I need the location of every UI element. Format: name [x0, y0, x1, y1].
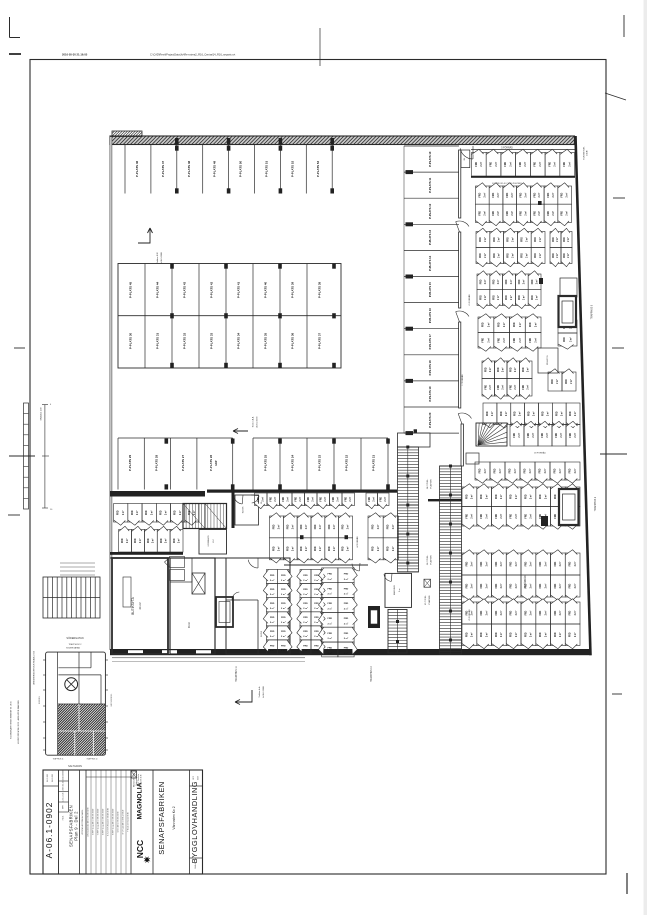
- svg-text:FRD: FRD: [511, 632, 513, 637]
- svg-text:FRD: FRD: [346, 497, 348, 502]
- svg-text:FRD: FRD: [525, 583, 527, 588]
- svg-text:FRD: FRD: [519, 279, 521, 284]
- svg-text:FRD: FRD: [281, 617, 286, 619]
- svg-text:TRAPPHUS 10: TRAPPHUS 10: [370, 665, 373, 681]
- svg-text:2 m²: 2 m²: [281, 593, 286, 596]
- svg-text:FRD: FRD: [555, 610, 557, 615]
- svg-text:FRD: FRD: [505, 162, 507, 167]
- svg-text:P-PLATS 42: P-PLATS 42: [210, 282, 214, 299]
- svg-text:S WSP Group AB tel. 08-6: S WSP Group AB tel. 08-685 60 00: [112, 809, 115, 835]
- svg-text:FRD: FRD: [525, 514, 527, 519]
- svg-text:18 FÖRRÅD: 18 FÖRRÅD: [534, 452, 546, 455]
- svg-text:P-PLATS 40: P-PLATS 40: [264, 282, 268, 299]
- svg-text:P-PLATS 52: P-PLATS 52: [290, 161, 294, 178]
- svg-text:FRD: FRD: [555, 583, 557, 588]
- svg-text:FRD: FRD: [498, 338, 500, 343]
- svg-text:FRD: FRD: [511, 367, 513, 372]
- svg-text:SLUSS: SLUSS: [243, 506, 245, 513]
- svg-text:P-PLATS 20: P-PLATS 20: [428, 412, 432, 428]
- svg-text:5 FÖRRÅD: 5 FÖRRÅD: [501, 147, 513, 150]
- svg-text:FRD: FRD: [281, 645, 286, 647]
- svg-text:2 m²: 2 m²: [303, 593, 308, 596]
- svg-text:2 m²: 2 m²: [270, 649, 275, 652]
- svg-text:FRD: FRD: [146, 510, 148, 515]
- svg-text:P-PLATS 18: P-PLATS 18: [428, 360, 432, 376]
- svg-text:FRD: FRD: [481, 583, 483, 588]
- svg-text:HISSMASKIN: HISSMASKIN: [207, 535, 210, 547]
- svg-text:2 m²: 2 m²: [281, 635, 286, 638]
- svg-text:FRD: FRD: [329, 546, 331, 551]
- svg-text:FRD: FRD: [160, 510, 162, 515]
- svg-text:SÖDERGATAN: SÖDERGATAN: [66, 637, 83, 640]
- svg-text:FRD: FRD: [508, 237, 510, 242]
- svg-text:2 m²: 2 m²: [328, 593, 333, 596]
- svg-text:FRD: FRD: [555, 561, 557, 566]
- svg-text:FRD: FRD: [270, 631, 275, 633]
- svg-text:E WSP Group AB tel. 08-6: E WSP Group AB tel. 08-685 60 00: [102, 809, 105, 835]
- svg-text:FRD: FRD: [570, 632, 572, 637]
- svg-text:2 m²: 2 m²: [270, 621, 275, 624]
- svg-text:2 m²: 2 m²: [328, 637, 333, 640]
- svg-text:FRD: FRD: [553, 237, 555, 242]
- svg-text:P-PLATS 46: P-PLATS 46: [135, 161, 139, 178]
- svg-text:FRD: FRD: [535, 237, 537, 242]
- svg-text:FRD: FRD: [303, 645, 308, 647]
- svg-text:FRD: FRD: [175, 510, 177, 515]
- svg-text:FRD: FRD: [529, 411, 531, 416]
- svg-text:SALTGATAN: SALTGATAN: [68, 765, 82, 768]
- svg-text:P-PLATS 10: P-PLATS 10: [428, 151, 432, 167]
- svg-text:FRD: FRD: [301, 546, 303, 551]
- svg-text:2 m²: 2 m²: [344, 593, 349, 596]
- svg-text:FRD: FRD: [328, 588, 333, 590]
- svg-text:FRD: FRD: [301, 524, 303, 529]
- svg-text:FRD: FRD: [523, 385, 525, 390]
- svg-text:FRD: FRD: [271, 497, 273, 502]
- svg-text:P-PLATS 37: P-PLATS 37: [318, 333, 322, 350]
- svg-text:FRD: FRD: [296, 497, 298, 502]
- svg-text:FRD: FRD: [479, 468, 481, 473]
- svg-text:16 CYKEL-: 16 CYKEL-: [427, 554, 429, 565]
- svg-text:FRD: FRD: [270, 603, 275, 605]
- svg-text:FRD: FRD: [524, 468, 526, 473]
- svg-text:44 FÖRRÅD: 44 FÖRRÅD: [356, 536, 359, 548]
- svg-text:FRD: FRD: [570, 433, 572, 438]
- svg-text:2016-05-30 21:16:05: 2016-05-30 21:16:05: [62, 53, 88, 57]
- svg-text:UPPDRAG.NR RITAD AV HANDL.: UPPDRAG.NR RITAD AV HANDL.: [81, 809, 84, 835]
- svg-text:FRD: FRD: [270, 617, 275, 619]
- svg-text:FRD: FRD: [535, 162, 537, 167]
- svg-text:FRD: FRD: [274, 524, 276, 529]
- svg-text:FRD: FRD: [530, 338, 532, 343]
- svg-text:HÖJDSYSTEM RH 2000 · ANSLUTER: HÖJDSYSTEM RH 2000 · ANSLUTER SAMORD.: [17, 699, 20, 744]
- svg-text:FRD: FRD: [496, 561, 498, 566]
- svg-text:FRD: FRD: [566, 379, 568, 384]
- svg-text:FRD: FRD: [549, 162, 551, 167]
- svg-text:FRD: FRD: [466, 632, 468, 637]
- svg-text:FRD: FRD: [281, 589, 286, 591]
- svg-text:P-PLATS 45: P-PLATS 45: [129, 282, 133, 299]
- svg-text:P-PLATS 19: P-PLATS 19: [428, 386, 432, 402]
- svg-text:P-PLATS 48: P-PLATS 48: [187, 161, 191, 178]
- svg-text:FRD: FRD: [564, 237, 566, 242]
- svg-text:2 m²: 2 m²: [314, 607, 319, 610]
- svg-text:FRD: FRD: [476, 162, 478, 167]
- svg-text:FRD: FRD: [466, 494, 468, 499]
- svg-text:FRD: FRD: [303, 575, 308, 577]
- svg-text:FRD: FRD: [498, 367, 500, 372]
- svg-text:FRD: FRD: [521, 237, 523, 242]
- svg-text:FRD: FRD: [494, 253, 496, 258]
- svg-text:Tel 08-470 50 80: Tel 08-470 50 80: [140, 774, 142, 785]
- svg-text:A-06.3-0000: A-06.3-0000: [160, 251, 163, 263]
- svg-text:P-PLATS 28: P-PLATS 28: [154, 455, 158, 472]
- svg-text:BARNVAGN: BARNVAGN: [393, 584, 396, 595]
- svg-text:A1 1:100: A1 1:100: [46, 774, 49, 782]
- svg-text:17 FÖRRÅD: 17 FÖRRÅD: [461, 374, 464, 386]
- svg-text:FRD: FRD: [511, 514, 513, 519]
- svg-text:Vänrosten Kv 2: Vänrosten Kv 2: [172, 806, 176, 829]
- svg-text:2 m²: 2 m²: [314, 593, 319, 596]
- svg-text:2 m²: 2 m²: [314, 579, 319, 582]
- svg-text:PLATSER: PLATSER: [430, 479, 433, 489]
- svg-text:FRD: FRD: [118, 510, 120, 515]
- svg-text:FRD: FRD: [287, 524, 289, 529]
- svg-text:FRD: FRD: [487, 411, 489, 416]
- svg-text:FRD: FRD: [507, 211, 509, 216]
- svg-text:FRD: FRD: [511, 561, 513, 566]
- svg-text:P-PLATS 38: P-PLATS 38: [318, 282, 322, 299]
- svg-text:FRD: FRD: [534, 211, 536, 216]
- svg-text:41 FÖRRÅD: 41 FÖRRÅD: [468, 294, 471, 306]
- svg-text:FRD: FRD: [530, 322, 532, 327]
- svg-text:FRD: FRD: [519, 295, 521, 300]
- svg-text:FRD: FRD: [270, 589, 275, 591]
- svg-text:P-PLATS 53: P-PLATS 53: [316, 161, 320, 178]
- svg-text:TRAPPHUS 9: TRAPPHUS 9: [594, 496, 597, 511]
- svg-text:PLATSER: PLATSER: [430, 555, 433, 565]
- svg-text:TRAPPHUS 9: TRAPPHUS 9: [591, 304, 594, 319]
- svg-text:BET: BET: [193, 776, 195, 779]
- svg-text:FRD: FRD: [479, 211, 481, 216]
- svg-text:P-PLATS 34: P-PLATS 34: [237, 333, 241, 350]
- svg-text:2 m²: 2 m²: [344, 652, 349, 655]
- svg-text:A-06.1-0902: A-06.1-0902: [44, 802, 54, 859]
- svg-text:Plan 9 - Del 2: Plan 9 - Del 2: [74, 811, 79, 841]
- svg-text:FRD: FRD: [303, 589, 308, 591]
- svg-text:2016-05-10: 2016-05-10: [63, 781, 65, 790]
- svg-text:2 m²: 2 m²: [328, 652, 333, 655]
- svg-text:B J o B VVS-Teknik tel.: B J o B VVS-Teknik tel. 08-618 40 00: [107, 808, 110, 836]
- svg-text:FRD: FRD: [498, 385, 500, 390]
- svg-text:FRD: FRD: [562, 211, 564, 216]
- svg-text:P-PLATS 49: P-PLATS 49: [213, 161, 217, 178]
- svg-text:FRD: FRD: [548, 192, 550, 197]
- svg-text:FRD: FRD: [481, 610, 483, 615]
- svg-text:P-PLATS 23: P-PLATS 23: [318, 455, 322, 472]
- svg-text:FRD: FRD: [369, 497, 371, 502]
- svg-text:FRD: FRD: [521, 192, 523, 197]
- svg-text:FRD: FRD: [506, 295, 508, 300]
- svg-text:FRD: FRD: [501, 411, 503, 416]
- svg-text:P-PLATS 11: P-PLATS 11: [428, 177, 432, 192]
- svg-text:FRD: FRD: [542, 433, 544, 438]
- svg-text:M V-Projekt AB tel. 070-: M V-Projekt AB tel. 070-43 60 20: [122, 810, 125, 835]
- svg-text:FRD: FRD: [328, 633, 333, 635]
- svg-text:FRD: FRD: [493, 295, 495, 300]
- svg-text:FRD: FRD: [388, 546, 390, 551]
- svg-text:P-PLATS 21: P-PLATS 21: [372, 455, 376, 472]
- svg-text:2 m²: 2 m²: [328, 578, 333, 581]
- svg-text:KONVEKTOR-: KONVEKTOR-: [584, 146, 586, 160]
- svg-text:MAGNOLIA: MAGNOLIA: [137, 782, 144, 819]
- svg-text:FRD: FRD: [122, 538, 124, 543]
- svg-text:FRD: FRD: [525, 494, 527, 499]
- svg-text:FRD: FRD: [328, 603, 333, 605]
- svg-text:FRD: FRD: [480, 237, 482, 242]
- svg-text:FRD: FRD: [525, 610, 527, 615]
- svg-text:FRD: FRD: [553, 253, 555, 258]
- svg-text:PLATSER: PLATSER: [428, 595, 431, 605]
- svg-text:FRD: FRD: [523, 367, 525, 372]
- svg-text:FRD: FRD: [388, 524, 390, 529]
- svg-text:FRD: FRD: [344, 588, 349, 590]
- svg-text:2 m²: 2 m²: [270, 593, 275, 596]
- svg-text:P-PLATS 47: P-PLATS 47: [161, 161, 165, 178]
- svg-text:P-PLATS 39: P-PLATS 39: [291, 282, 295, 299]
- svg-text:2 m²: 2 m²: [328, 607, 333, 610]
- svg-text:FRD: FRD: [381, 497, 383, 502]
- svg-text:FRD: FRD: [535, 253, 537, 258]
- svg-text:FRD: FRD: [552, 379, 554, 384]
- svg-text:FRD: FRD: [314, 645, 319, 647]
- svg-text:FRD: FRD: [493, 279, 495, 284]
- svg-text:FRD: FRD: [486, 367, 488, 372]
- svg-text:FRD: FRD: [314, 631, 319, 633]
- svg-text:2 m²: 2 m²: [344, 637, 349, 640]
- svg-text:V WSP Group AB tel. 08-6: V WSP Group AB tel. 08-685 60 00: [97, 809, 100, 835]
- svg-text:2 m²: 2 m²: [314, 635, 319, 638]
- svg-text:FRD: FRD: [258, 497, 260, 502]
- svg-text:FRD: FRD: [343, 546, 345, 551]
- svg-text:FRD: FRD: [481, 561, 483, 566]
- svg-text:Lotta Lindh: Lotta Lindh: [62, 793, 65, 802]
- svg-text:2 m²: 2 m²: [303, 635, 308, 638]
- svg-text:FRD: FRD: [540, 583, 542, 588]
- svg-text:Sektion A-A: Sektion A-A: [258, 686, 261, 697]
- svg-text:FRD: FRD: [528, 433, 530, 438]
- svg-text:HKP: HKP: [215, 460, 218, 465]
- svg-text:FRD: FRD: [507, 192, 509, 197]
- svg-text:FRD: FRD: [132, 510, 134, 515]
- svg-text:2 m²: 2 m²: [344, 578, 349, 581]
- svg-text:BRYGGERIGR.: BRYGGERIGR.: [111, 693, 113, 706]
- svg-text:FRD: FRD: [540, 632, 542, 637]
- svg-text:G ELK AB tel. 08-695 61: G ELK AB tel. 08-695 61 00: [117, 812, 120, 833]
- svg-text:FRD: FRD: [514, 433, 516, 438]
- svg-text:P-PLATS 44: P-PLATS 44: [156, 282, 160, 299]
- svg-text:P-PLATS 17: P-PLATS 17: [428, 334, 432, 350]
- svg-text:Sektion A-A: Sektion A-A: [252, 416, 255, 427]
- svg-text:FRD: FRD: [514, 322, 516, 327]
- svg-text:FRD: FRD: [514, 338, 516, 343]
- svg-text:FRD: FRD: [491, 162, 493, 167]
- svg-text:FRD: FRD: [511, 583, 513, 588]
- svg-text:FRD: FRD: [496, 632, 498, 637]
- svg-text:P-PLATS 50: P-PLATS 50: [239, 161, 243, 178]
- svg-text:2 m²: 2 m²: [303, 621, 308, 624]
- svg-text:FRD: FRD: [525, 561, 527, 566]
- svg-text:FRD: FRD: [486, 385, 488, 390]
- svg-text:FRD: FRD: [520, 162, 522, 167]
- svg-text:FRD: FRD: [466, 561, 468, 566]
- svg-text:2 m²: 2 m²: [303, 607, 308, 610]
- svg-text:FRD: FRD: [564, 337, 566, 342]
- svg-text:A Tema Arkitekter AB tel: A Tema Arkitekter AB tel. 08-470 51 00: [87, 808, 90, 837]
- svg-text:P Brisab tel. 054-44 81: P Brisab tel. 054-44 81 90: [127, 812, 130, 832]
- svg-text:FRD: FRD: [333, 497, 335, 502]
- svg-text:P-PLATS 33: P-PLATS 33: [210, 333, 214, 350]
- svg-text:FRD: FRD: [540, 494, 542, 499]
- svg-text:45 CYKEL-: 45 CYKEL-: [425, 595, 427, 605]
- svg-text:FRD: FRD: [283, 497, 285, 502]
- svg-text:FRD: FRD: [281, 575, 286, 577]
- svg-text:FRD: FRD: [562, 192, 564, 197]
- svg-text:NCC: NCC: [135, 840, 145, 858]
- svg-text:MPH: MPH: [63, 804, 65, 809]
- svg-text:P-PLATS 31: P-PLATS 31: [156, 333, 160, 350]
- svg-text:FRD: FRD: [344, 633, 349, 635]
- svg-text:FRD: FRD: [525, 632, 527, 637]
- svg-text:FRD: FRD: [532, 295, 534, 300]
- svg-text:P-PLATS 51: P-PLATS 51: [264, 161, 268, 178]
- svg-text:FRD: FRD: [555, 514, 557, 519]
- svg-text:FRD: FRD: [509, 468, 511, 473]
- svg-text:ANT: ANT: [197, 776, 200, 779]
- svg-text:FRD: FRD: [481, 632, 483, 637]
- svg-text:FRD: FRD: [329, 524, 331, 529]
- svg-text:P-PLATS 43: P-PLATS 43: [183, 282, 187, 299]
- svg-text:FRD: FRD: [328, 574, 333, 576]
- svg-text:FRD: FRD: [281, 631, 286, 633]
- svg-text:RULLSTOL: RULLSTOL: [547, 355, 549, 365]
- svg-text:FRD: FRD: [480, 253, 482, 258]
- svg-text:FRD: FRD: [555, 494, 557, 499]
- svg-text:FRD: FRD: [274, 546, 276, 551]
- svg-text:FRD: FRD: [569, 468, 571, 473]
- svg-text:FRD: FRD: [511, 610, 513, 615]
- svg-text:2 m²: 2 m²: [344, 607, 349, 610]
- svg-text:Sektion B-B: Sektion B-B: [156, 252, 159, 264]
- svg-text:K WSP Group AB tel. 08-6: K WSP Group AB tel. 08-685 60 00: [92, 809, 95, 835]
- svg-text:FRD: FRD: [303, 603, 308, 605]
- svg-text:FRD: FRD: [496, 583, 498, 588]
- svg-text:2 m²: 2 m²: [270, 635, 275, 638]
- svg-text:P-PLATS 12: P-PLATS 12: [428, 203, 432, 219]
- svg-text:FRD: FRD: [483, 322, 485, 327]
- svg-text:FRD: FRD: [308, 497, 310, 502]
- svg-text:LINJE: LINJE: [587, 150, 589, 156]
- svg-text:FRD: FRD: [373, 546, 375, 551]
- svg-text:P-PLATS 13: P-PLATS 13: [428, 229, 432, 245]
- svg-text:FRD: FRD: [344, 574, 349, 576]
- svg-text:2 m²: 2 m²: [270, 607, 275, 610]
- svg-text:FRD: FRD: [161, 538, 163, 543]
- svg-text:FRD: FRD: [556, 411, 558, 416]
- svg-text:2 m²: 2 m²: [303, 579, 308, 582]
- svg-text:2 m²: 2 m²: [281, 621, 286, 624]
- svg-text:SÖDERGATAN: SÖDERGATAN: [66, 647, 80, 650]
- svg-text:FRD: FRD: [532, 279, 534, 284]
- svg-text:36 m²: 36 m²: [188, 622, 191, 628]
- svg-text:FRD: FRD: [498, 322, 500, 327]
- svg-text:FRD: FRD: [564, 162, 566, 167]
- svg-text:FRD: FRD: [321, 497, 323, 502]
- svg-text:P-PLATS 32: P-PLATS 32: [183, 333, 187, 350]
- svg-text:2 m²: 2 m²: [281, 649, 286, 652]
- svg-text:FRD: FRD: [303, 617, 308, 619]
- svg-text:SLUSS: SLUSS: [261, 630, 263, 637]
- svg-text:FRD: FRD: [570, 561, 572, 566]
- svg-text:P-PLATS 35: P-PLATS 35: [264, 333, 268, 350]
- svg-text:FRD: FRD: [534, 192, 536, 197]
- svg-text:FRD: FRD: [343, 524, 345, 529]
- svg-text:FRD: FRD: [494, 237, 496, 242]
- svg-text:KOORDINATSYSTEM SWEREF 99 18 0: KOORDINATSYSTEM SWEREF 99 18 00: [10, 700, 13, 738]
- svg-text:FRD: FRD: [554, 468, 556, 473]
- svg-text:A3 1:200: A3 1:200: [51, 774, 54, 782]
- svg-text:A-06.2-0000: A-06.2-0000: [262, 685, 265, 697]
- svg-text:FRD: FRD: [494, 468, 496, 473]
- svg-text:FRD: FRD: [344, 603, 349, 605]
- svg-text:FRD: FRD: [496, 494, 498, 499]
- svg-text:FRD: FRD: [344, 648, 349, 650]
- svg-text:TRAPPHUS 12: TRAPPHUS 12: [69, 643, 82, 646]
- svg-text:P-PLATS 27: P-PLATS 27: [181, 455, 185, 472]
- svg-text:FRD: FRD: [570, 583, 572, 588]
- svg-text:18 CYKEL-: 18 CYKEL-: [427, 478, 429, 489]
- svg-text:P-PLATS 16: P-PLATS 16: [428, 308, 432, 324]
- svg-text:FRD: FRD: [303, 631, 308, 633]
- svg-text:TRAPPHUS 11: TRAPPHUS 11: [235, 666, 238, 682]
- svg-text:2 m²: 2 m²: [344, 622, 349, 625]
- svg-text:45 FÖRRÅD: 45 FÖRRÅD: [468, 609, 471, 621]
- svg-text:FRD: FRD: [466, 610, 468, 615]
- svg-text:FRD: FRD: [521, 211, 523, 216]
- svg-text:P-PLATS 14: P-PLATS 14: [428, 255, 432, 271]
- svg-text:FRD: FRD: [328, 618, 333, 620]
- svg-text:2 m²: 2 m²: [281, 607, 286, 610]
- svg-text:P-PLATS 24: P-PLATS 24: [291, 455, 295, 472]
- svg-text:FRD: FRD: [511, 385, 513, 390]
- svg-text:2 m²: 2 m²: [328, 622, 333, 625]
- svg-text:FRD: FRD: [373, 524, 375, 529]
- svg-text:FRD: FRD: [493, 211, 495, 216]
- svg-text:P-PLATS 15: P-PLATS 15: [428, 282, 432, 298]
- svg-text:2 m²: 2 m²: [281, 579, 286, 582]
- svg-text:FRD: FRD: [174, 538, 176, 543]
- svg-text:FRD: FRD: [556, 433, 558, 438]
- svg-text:C:\CAD\Revit\ProjectDataUtv\Re: C:\CAD\Revit\ProjectDataUtv\Re-rotera2_R…: [150, 53, 235, 57]
- svg-text:FRD: FRD: [508, 253, 510, 258]
- svg-text:FRD: FRD: [287, 546, 289, 551]
- svg-text:FRD: FRD: [481, 514, 483, 519]
- svg-text:71131: 71131: [63, 816, 65, 821]
- svg-text:FRD: FRD: [479, 192, 481, 197]
- svg-text:FRD: FRD: [315, 546, 317, 551]
- svg-text:FRD: FRD: [466, 583, 468, 588]
- svg-text:P-PLATS 41: P-PLATS 41: [237, 282, 241, 299]
